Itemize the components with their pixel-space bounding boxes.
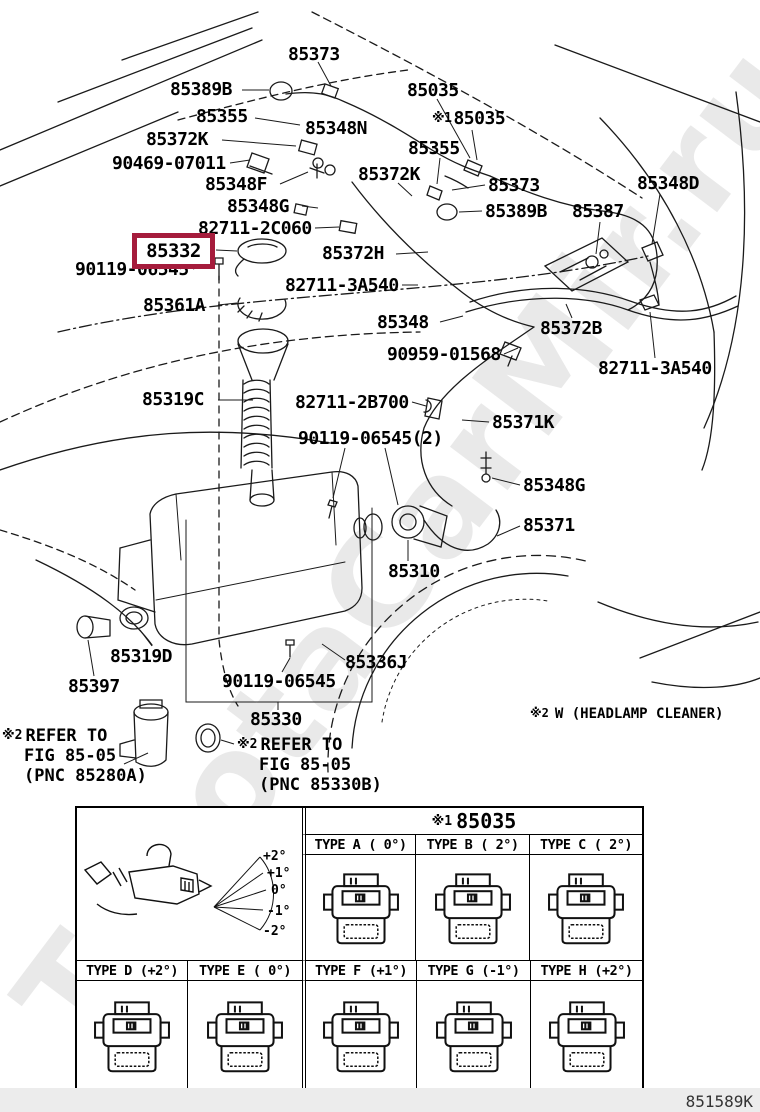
note-mark-1: ※1 bbox=[432, 814, 452, 829]
part-label-82711-3A540: 82711-3A540 bbox=[598, 360, 712, 378]
type-b-header: TYPE B( 2°) bbox=[415, 834, 529, 854]
part-label-90119-06545(2): 90119-06545(2) bbox=[298, 430, 443, 448]
nozzle-type-table: +2° +1° 0° -1° -2° ※1 85035 TYPE A( 0°) … bbox=[75, 806, 644, 1093]
part-label-85035: ※185035 bbox=[432, 110, 505, 128]
highlighted-part-label-85332: 85332 bbox=[132, 233, 215, 269]
spray-angle-drawing: +2° +1° 0° -1° -2° bbox=[77, 808, 302, 960]
type-h-header: TYPE H(+2°) bbox=[530, 960, 642, 980]
spray-angle-cell: +2° +1° 0° -1° -2° bbox=[77, 808, 302, 960]
part-label-85372K: 85372K bbox=[358, 166, 420, 184]
type-f-image bbox=[302, 980, 416, 1090]
part-label-85348G: 85348G bbox=[227, 198, 289, 216]
connector-drawing bbox=[431, 868, 515, 948]
type-d-image bbox=[77, 980, 187, 1090]
type-b-image bbox=[415, 854, 529, 960]
type-a-image bbox=[302, 854, 415, 960]
type-g-image bbox=[416, 980, 530, 1090]
part-label-85361A: 85361A bbox=[143, 297, 205, 315]
part-label-85355: 85355 bbox=[196, 108, 248, 126]
figure-code: 851589K bbox=[686, 1092, 753, 1111]
headlamp-cleaner-note: ※2W (HEADLAMP CLEANER) bbox=[530, 706, 723, 722]
type-h-image bbox=[530, 980, 642, 1090]
part-label-85397: 85397 bbox=[68, 678, 120, 696]
part-label-85373: 85373 bbox=[288, 46, 340, 64]
table-header-85035: ※1 85035 bbox=[302, 808, 642, 834]
part-label-85355: 85355 bbox=[408, 140, 460, 158]
connector-drawing bbox=[319, 868, 403, 948]
connector-drawing bbox=[545, 996, 629, 1076]
part-label-85371K: 85371K bbox=[492, 414, 554, 432]
type-e-image bbox=[187, 980, 302, 1090]
type-c-header: TYPE C( 2°) bbox=[529, 834, 642, 854]
part-label-85372H: 85372H bbox=[322, 245, 384, 263]
type-f-header: TYPE F(+1°) bbox=[302, 960, 416, 980]
type-c-image bbox=[529, 854, 642, 960]
angle-tick: +2° bbox=[263, 849, 286, 864]
part-label-85348F: 85348F bbox=[205, 176, 267, 194]
part-label-85035: 85035 bbox=[407, 82, 459, 100]
parts-catalog-page: ToyotaCarMir.ru bbox=[0, 0, 760, 1112]
part-label-85348G: 85348G bbox=[523, 477, 585, 495]
part-label-85372B: 85372B bbox=[540, 320, 602, 338]
type-g-header: TYPE G(-1°) bbox=[416, 960, 530, 980]
part-label-85330: 85330 bbox=[250, 711, 302, 729]
refer-note-2: ※2REFER TOFIG 85-05(PNC 85330B) bbox=[237, 735, 382, 795]
type-a-header: TYPE A( 0°) bbox=[302, 834, 415, 854]
part-label-90119-06545: 90119-06545 bbox=[222, 673, 336, 691]
part-label-85372K: 85372K bbox=[146, 131, 208, 149]
part-label-85371: 85371 bbox=[523, 517, 575, 535]
connector-drawing bbox=[90, 996, 174, 1076]
part-label-85310: 85310 bbox=[388, 563, 440, 581]
footer-strip: 851589K bbox=[0, 1088, 760, 1112]
connector-drawing bbox=[319, 996, 403, 1076]
part-label-85319C: 85319C bbox=[142, 391, 204, 409]
part-label-82711-3A540: 82711-3A540 bbox=[285, 277, 399, 295]
angle-tick: -2° bbox=[263, 924, 286, 939]
part-label-90469-07011: 90469-07011 bbox=[112, 155, 226, 173]
angle-tick: 0° bbox=[271, 883, 287, 898]
refer-note-1: ※2REFER TOFIG 85-05(PNC 85280A) bbox=[2, 726, 147, 786]
part-label-82711-2C060: 82711-2C060 bbox=[198, 220, 312, 238]
part-label-85336J: 85336J bbox=[345, 654, 407, 672]
part-label-85387: 85387 bbox=[572, 203, 624, 221]
connector-drawing bbox=[544, 868, 628, 948]
table-header-part-number: 85035 bbox=[456, 809, 516, 833]
angle-tick: +1° bbox=[267, 866, 290, 881]
type-d-header: TYPE D(+2°) bbox=[77, 960, 187, 980]
angle-tick: -1° bbox=[267, 904, 290, 919]
part-label-85348: 85348 bbox=[377, 314, 429, 332]
part-label-85348D: 85348D bbox=[637, 175, 699, 193]
part-label-85348N: 85348N bbox=[305, 120, 367, 138]
part-label-85373: 85373 bbox=[488, 177, 540, 195]
part-label-82711-2B700: 82711-2B700 bbox=[295, 394, 409, 412]
part-label-90959-01568: 90959-01568 bbox=[387, 346, 501, 364]
connector-drawing bbox=[432, 996, 516, 1076]
part-label-85389B: 85389B bbox=[170, 81, 232, 99]
part-label-85389B: 85389B bbox=[485, 203, 547, 221]
type-e-header: TYPE E( 0°) bbox=[187, 960, 302, 980]
part-label-85319D: 85319D bbox=[110, 648, 172, 666]
connector-drawing bbox=[203, 996, 287, 1076]
